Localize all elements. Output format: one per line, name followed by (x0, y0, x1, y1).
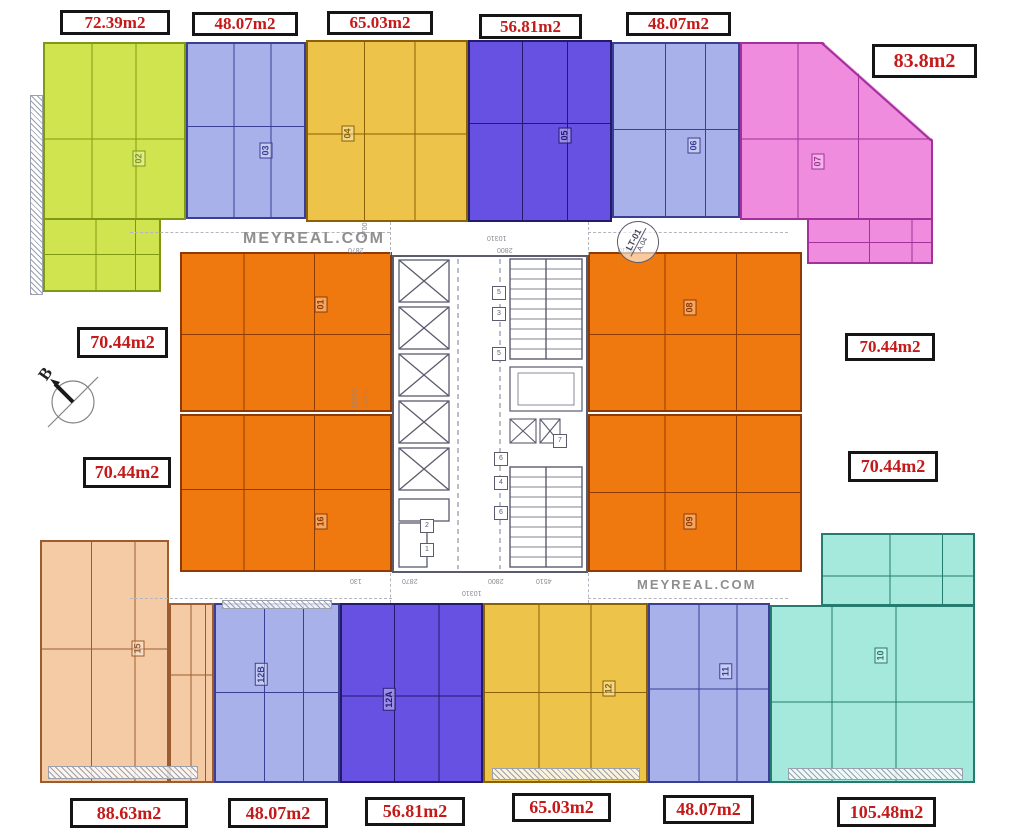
area-label-top-2: 48.07m2 (192, 12, 298, 36)
unit-number: 10 (874, 647, 887, 663)
shaft-label: 6 (494, 506, 508, 520)
apartment-08: 08 (588, 252, 802, 412)
dimension-label: 15500 (363, 389, 370, 408)
guide-line (130, 598, 392, 599)
dimension-label: 15550 (352, 389, 359, 408)
apartment-02: 02 (43, 42, 186, 220)
shaft-label: 4 (494, 476, 508, 490)
area-label-bottom-3: 56.81m2 (365, 797, 465, 826)
area-label-mid-right-1: 70.44m2 (845, 333, 935, 361)
guide-line (390, 222, 391, 255)
apartment-10: 10 (770, 605, 975, 783)
dimension-label: 4510 (536, 577, 552, 584)
dimension-label: 10310 (487, 234, 506, 241)
area-label-bottom-1: 88.63m2 (70, 798, 188, 828)
balcony-hatch (788, 768, 963, 780)
area-label-top-3: 65.03m2 (327, 11, 433, 35)
apartment-12: 12 (483, 603, 648, 783)
balcony-hatch (492, 768, 640, 780)
shaft-label: 5 (492, 286, 506, 300)
area-label-top-5: 48.07m2 (626, 12, 731, 36)
unit-number: 04 (341, 126, 354, 142)
area-label-bottom-6: 105.48m2 (837, 797, 936, 827)
apartment-04: 04 (306, 40, 468, 222)
shaft-label: 1 (420, 543, 434, 557)
apartment-10-upper (821, 533, 975, 606)
dimension-label: 2800 (488, 577, 504, 584)
balcony-hatch (30, 95, 43, 295)
balcony-hatch (222, 600, 332, 609)
dimension-label: 2870 (402, 577, 418, 584)
guide-line (588, 222, 589, 255)
area-label-mid-left-2: 70.44m2 (83, 457, 171, 488)
apartment-07-lower (807, 218, 933, 264)
unit-number: 09 (684, 513, 697, 529)
balcony-hatch (48, 766, 198, 779)
area-label-bottom-5: 48.07m2 (663, 795, 754, 824)
apartment-16: 16 (180, 414, 392, 572)
guide-line (588, 598, 788, 599)
shaft-label: 3 (492, 307, 506, 321)
apartment-06: 06 (612, 42, 740, 218)
unit-number: 11 (720, 664, 733, 680)
unit-number: 02 (133, 150, 146, 166)
unit-number: 12A (383, 688, 396, 711)
shaft-label: 6 (494, 452, 508, 466)
unit-number: 07 (812, 154, 825, 170)
apartment-15-right (169, 603, 214, 783)
guide-line (390, 573, 391, 603)
unit-number: 16 (315, 513, 328, 529)
watermark: MEYREAL.COM (243, 230, 385, 248)
unit-number: 12B (255, 664, 268, 687)
area-label-mid-left-1: 70.44m2 (77, 327, 168, 358)
unit-number: 01 (315, 296, 328, 312)
shaft-label: 2 (420, 519, 434, 533)
unit-number: 06 (687, 137, 700, 153)
unit-number: 15 (131, 641, 144, 657)
dimension-label: 10310 (462, 589, 481, 596)
shaft-label: 5 (492, 347, 506, 361)
apartment-03: 03 (186, 42, 306, 219)
unit-number: 05 (558, 128, 571, 144)
unit-number: 03 (259, 143, 272, 159)
apartment-15: 15 (40, 540, 169, 783)
apartment-12A: 12A (340, 603, 483, 783)
apartment-09: 09 (588, 414, 802, 572)
unit-number: 08 (684, 299, 697, 315)
area-label-top-1: 72.39m2 (60, 10, 170, 35)
apartment-02-lower (43, 218, 161, 292)
area-label-bottom-2: 48.07m2 (228, 798, 328, 828)
area-label-bottom-4: 65.03m2 (512, 793, 611, 822)
dimension-label: 130 (350, 577, 362, 584)
watermark: MEYREAL.COM (637, 577, 757, 592)
unit-number: 12 (602, 681, 615, 697)
apartment-11: 11 (648, 603, 770, 783)
area-label-top-4: 56.81m2 (479, 14, 582, 39)
compass-icon: B (40, 366, 104, 430)
area-label-top-6: 83.8m2 (872, 44, 977, 78)
area-label-mid-right-2: 70.44m2 (848, 451, 938, 482)
floor-plan: 02 03 04 05 06 07 01 16 08 09 15 12B 12A… (0, 0, 1021, 833)
apartment-01: 01 (180, 252, 392, 412)
shaft-label: 7 (553, 434, 567, 448)
guide-line (588, 573, 589, 603)
apartment-12B: 12B (214, 603, 340, 783)
dimension-label: 2800 (497, 246, 513, 253)
apartment-05: 05 (468, 40, 612, 222)
